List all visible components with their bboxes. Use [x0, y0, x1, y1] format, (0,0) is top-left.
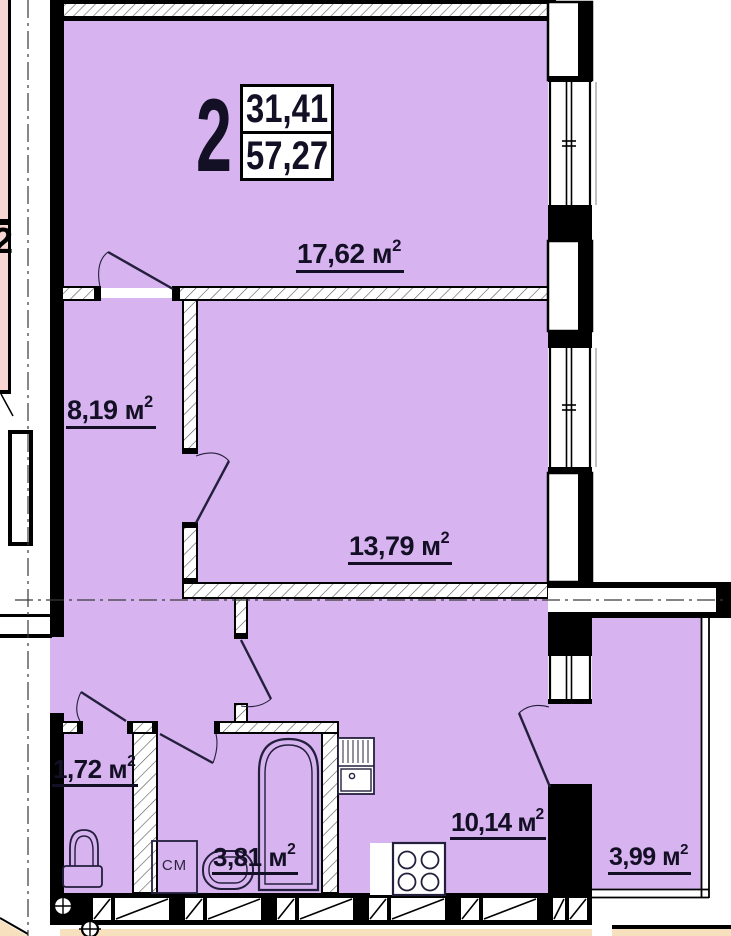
area-label-bathroom: 3,81 м2	[212, 844, 298, 875]
area-label-kitchen: 10,14 м2	[450, 809, 546, 840]
kitchen-sink-icon	[338, 738, 374, 794]
area-label-balcony: 3,99 м2	[608, 845, 691, 875]
stairwell-context	[0, 0, 52, 936]
bottom-wall	[50, 893, 731, 936]
area-label-wc: 1,72 м2	[52, 756, 138, 787]
total-area-value: 57,27	[243, 134, 331, 178]
living-area-value: 31,41	[243, 87, 331, 134]
adjacent-apartment-number: 2	[0, 220, 13, 262]
stove-icon	[370, 843, 445, 895]
area-label-living-room: 17,62 м2	[296, 240, 404, 273]
floor-plan: 2 31,41 57,27 17,62 м2 8,19 м2 13,79 м2 …	[0, 0, 731, 936]
washing-machine-label: СМ	[152, 857, 197, 874]
apartment-area-box: 31,41 57,27	[240, 84, 334, 181]
plan-drawing	[0, 0, 731, 936]
area-label-bedroom: 13,79 м2	[348, 533, 452, 565]
apartment-number: 2	[196, 96, 232, 177]
area-label-hallway: 8,19 м2	[66, 397, 156, 429]
